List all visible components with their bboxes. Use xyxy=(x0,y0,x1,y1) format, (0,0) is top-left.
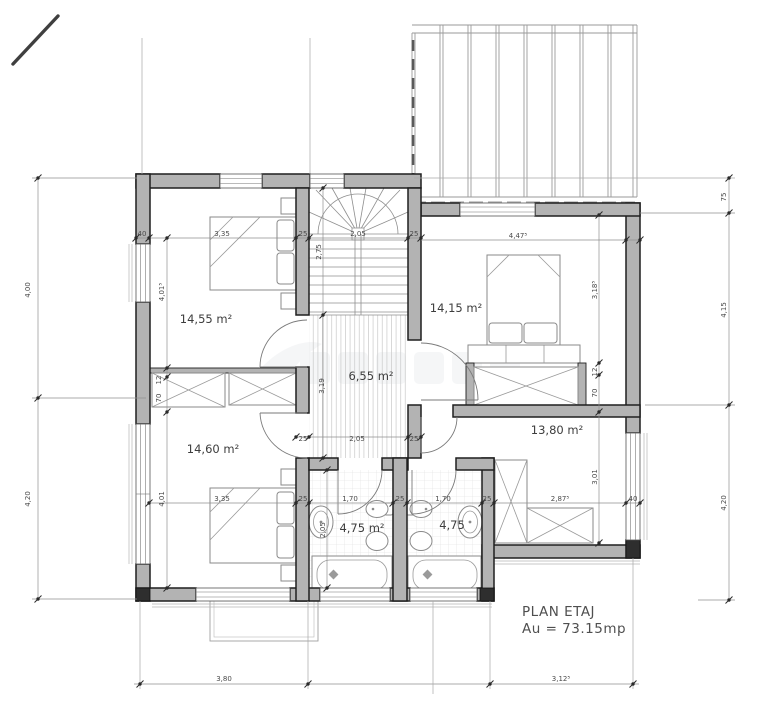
dim-label: 25 xyxy=(396,495,405,503)
title-block: PLAN ETAJ Au = 73.15mp xyxy=(522,604,626,637)
dim-label: 2,05 xyxy=(350,230,366,238)
roof-terrace xyxy=(412,25,637,202)
bed-top-right xyxy=(468,255,580,363)
dim-label: 75 xyxy=(720,193,728,202)
roof-rafters xyxy=(412,25,633,197)
plan-area: Au = 73.15mp xyxy=(522,621,626,637)
window xyxy=(196,588,290,601)
room-label-hallway: 6,55 m² xyxy=(348,369,393,383)
dim-label: 2,87⁵ xyxy=(551,495,570,503)
dim-label: 2,05 xyxy=(349,435,365,443)
window xyxy=(136,244,150,302)
dim-label: 25 xyxy=(410,230,419,238)
dim-label: 25 xyxy=(299,495,308,503)
dim-label: 12 xyxy=(591,368,599,377)
dim-label: 4,47⁵ xyxy=(509,232,528,240)
bed-top-left xyxy=(210,198,296,309)
dim-label: 3,19 xyxy=(318,378,326,394)
window xyxy=(626,433,640,540)
dim-label: 1,70 xyxy=(342,495,358,503)
window xyxy=(320,588,390,601)
dim-label: 25 xyxy=(299,230,308,238)
dim-label: 70 xyxy=(155,394,163,403)
dim-label: 4,00 xyxy=(24,282,32,298)
dim-label: 4,15 xyxy=(720,302,728,318)
dim-label: 12 xyxy=(155,376,163,385)
door-bedroom-right xyxy=(421,417,457,453)
dim-label: 4,01 xyxy=(158,491,166,507)
dim-label: 3,35 xyxy=(214,230,230,238)
dim-label: 25 xyxy=(299,435,308,443)
bed-bottom-left xyxy=(210,469,296,581)
wardrobe-right-row xyxy=(466,363,586,407)
dim-label: 70 xyxy=(591,389,599,398)
dim-label: 3,01 xyxy=(591,469,599,485)
dim-label: 25 xyxy=(410,435,419,443)
room-label-bedroom-right: 13,80 m² xyxy=(531,423,583,437)
corner-mark-icon xyxy=(13,16,58,64)
dim-label: 3,35 xyxy=(214,495,230,503)
window xyxy=(410,588,477,601)
dim-label: 4,01⁵ xyxy=(158,283,166,302)
dim-label: 2,05 xyxy=(319,522,327,538)
dim-label: 2,75 xyxy=(315,244,323,260)
wardrobe-right-room xyxy=(495,460,593,543)
floor-plan-sheet: 40 3,35 25 2,05 25 4,47⁵ 2,75 4,01⁵ 3,18… xyxy=(0,0,765,720)
room-label-bathroom-right: 4,75 xyxy=(439,518,465,532)
wardrobe-left-row xyxy=(149,368,296,407)
dim-label: 3,12⁵ xyxy=(552,675,571,683)
room-label-bathroom-left: 4,75 m² xyxy=(339,521,384,535)
room-label-bedroom-bottom-left: 14,60 m² xyxy=(187,442,239,456)
stairs xyxy=(309,188,408,315)
dim-label: 3,80 xyxy=(216,675,232,683)
window xyxy=(310,174,344,188)
plan-title: PLAN ETAJ xyxy=(522,604,595,620)
dim-label: 4,20 xyxy=(24,491,32,507)
dim-label: 1,70 xyxy=(435,495,451,503)
floor-plan-drawing: 40 3,35 25 2,05 25 4,47⁵ 2,75 4,01⁵ 3,18… xyxy=(0,0,765,720)
window xyxy=(220,174,262,188)
dim-label: 40 xyxy=(629,495,638,503)
window xyxy=(136,424,150,564)
dim-label: 4,20 xyxy=(720,495,728,511)
room-label-bedroom-top-left: 14,55 m² xyxy=(180,312,232,326)
dim-label: 40 xyxy=(138,230,147,238)
room-label-bedroom-top-right: 14,15 m² xyxy=(430,301,482,315)
dim-label: 3,18⁵ xyxy=(591,281,599,300)
window xyxy=(460,203,535,216)
dim-label: 25 xyxy=(483,495,492,503)
